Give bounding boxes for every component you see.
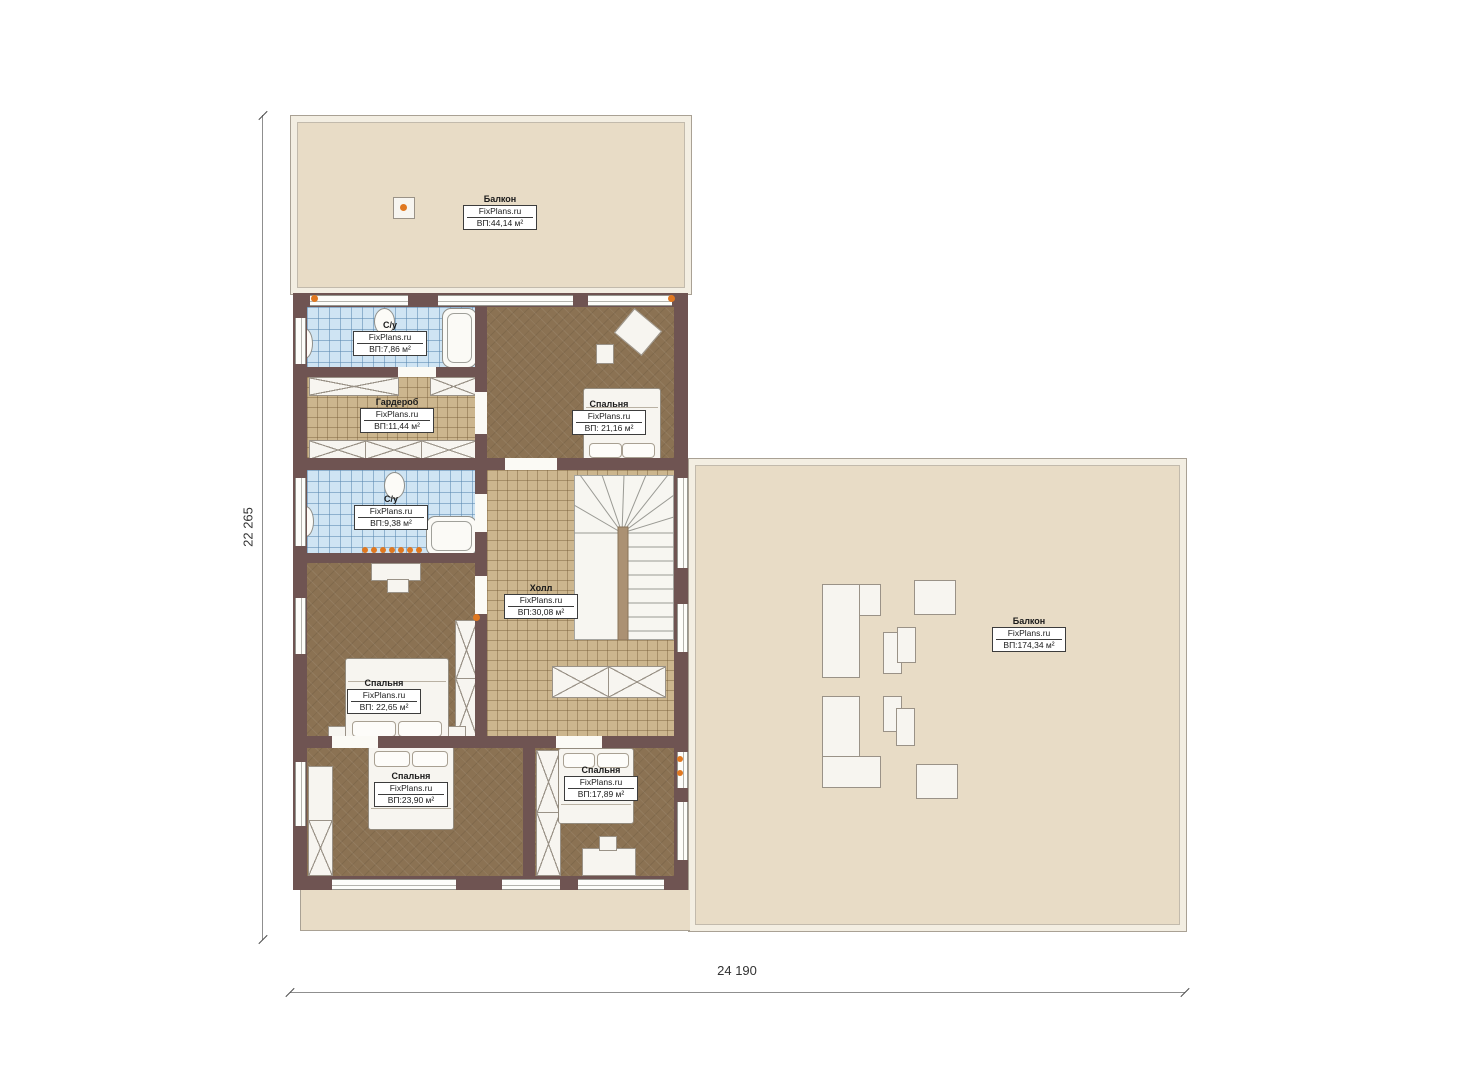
wall-mid-horizontal [293,458,688,470]
door-opening [556,736,602,748]
room-name: Балкон [463,194,537,204]
bathtub-icon [442,308,477,368]
window [438,295,573,306]
door-opening [475,576,487,614]
window [677,478,688,568]
room-area: ВП: 21,16 м² [576,422,642,434]
brand: FixPlans.ru [508,595,574,606]
room-name: Спальня [374,771,448,781]
coffee-table-icon [897,627,916,663]
room-name: Балкон [992,616,1066,626]
room-label-bedroom-top: Спальня FixPlans.ru ВП: 21,16 м² [572,399,646,435]
brand: FixPlans.ru [351,690,417,701]
dimension-line-horizontal [290,992,1185,993]
door-opening [332,736,378,748]
window [677,802,688,860]
room-label-bedroom-bottom-left: Спальня FixPlans.ru ВП:23,90 м² [374,771,448,807]
room-area: ВП:7,86 м² [357,343,423,355]
socket-marker [311,295,318,302]
room-label-su-mid: С/у FixPlans.ru ВП:9,38 м² [354,494,428,530]
towel-rail-dot [416,547,422,553]
window [588,295,672,306]
dimension-tick [258,935,267,944]
closet-icon [552,666,610,698]
room-name: Гардероб [360,397,434,407]
closet-icon [608,666,666,698]
desk-icon [582,848,636,876]
room-name: Холл [504,583,578,593]
brand: FixPlans.ru [576,411,642,422]
bathtub-icon [426,516,477,556]
armchair-icon [914,580,956,615]
armchair-icon [916,764,958,799]
coffee-table-icon [896,708,915,746]
side-table-icon [596,344,614,364]
window [295,478,306,546]
room-name: С/у [354,494,428,504]
chair-icon [387,579,409,593]
room-area: ВП:30,08 м² [508,606,574,618]
room-area: ВП:11,44 м² [364,420,430,432]
staircase-icon [574,475,674,640]
dimension-value-horizontal: 24 190 [717,963,757,978]
monitor-icon [599,836,617,851]
brand: FixPlans.ru [467,206,533,217]
door-opening [475,392,487,434]
dimension-tick [258,111,267,120]
floor-plan-canvas: Балкон FixPlans.ru ВП:44,14 м² С/у FixPl… [0,0,1474,1080]
towel-rail-dot [362,547,368,553]
room-area: ВП:17,89 м² [568,788,634,800]
socket-marker [677,756,683,762]
closet-icon [421,440,477,460]
sofa-icon [822,756,881,788]
brand: FixPlans.ru [357,332,423,343]
wall-right [674,293,688,890]
socket-marker [677,770,683,776]
room-name: С/у [353,320,427,330]
room-label-bedroom-bottom-right: Спальня FixPlans.ru ВП:17,89 м² [564,765,638,801]
room-area: ВП:174,34 м² [996,639,1062,651]
room-area: ВП: 22,65 м² [351,701,417,713]
brand: FixPlans.ru [568,777,634,788]
room-label-balcony-top: Балкон FixPlans.ru ВП:44,14 м² [463,194,537,230]
brand: FixPlans.ru [378,783,444,794]
room-area: ВП:23,90 м² [378,794,444,806]
closet-icon [309,377,399,396]
closet-icon [365,440,423,460]
socket-marker [473,614,480,621]
socket-marker [668,295,675,302]
room-label-su-top: С/у FixPlans.ru ВП:7,86 м² [353,320,427,356]
room-label-hall: Холл FixPlans.ru ВП:30,08 м² [504,583,578,619]
window [295,598,306,654]
towel-rail-dot [398,547,404,553]
towel-rail-dot [389,547,395,553]
wall-su-top-bottom [293,367,475,377]
room-name: Спальня [572,399,646,409]
brand: FixPlans.ru [364,409,430,420]
room-name: Спальня [564,765,638,775]
room-label-wardrobe: Гардероб FixPlans.ru ВП:11,44 м² [360,397,434,433]
closet-icon [308,820,333,876]
door-opening [398,367,436,377]
towel-rail-dot [407,547,413,553]
towel-rail-dot [371,547,377,553]
brand: FixPlans.ru [358,506,424,517]
cabinet-icon [308,766,333,822]
door-opening [505,458,557,470]
sofa-icon [822,584,860,678]
wall-su-mid-bottom [293,553,475,563]
room-label-balcony-right: Балкон FixPlans.ru ВП:174,34 м² [992,616,1066,652]
window [310,295,408,306]
dimension-value-vertical: 22 265 [241,507,256,547]
room-area: ВП:9,38 м² [358,517,424,529]
brand: FixPlans.ru [996,628,1062,639]
window [332,879,456,890]
room-label-bedroom-mid: Спальня FixPlans.ru ВП: 22,65 м² [347,678,421,714]
closet-icon [309,440,367,460]
window [295,762,306,826]
room-name: Спальня [347,678,421,688]
balcony-bottom-strip [300,890,690,931]
balcony-right-floor [688,458,1187,932]
closet-icon [430,377,477,396]
dimension-line-vertical [262,115,263,940]
window [295,318,306,364]
window [677,604,688,652]
window [578,879,664,890]
towel-rail-dot [380,547,386,553]
ceiling-light-icon [393,197,415,219]
wall-between-bottom-bedrooms [523,748,535,876]
door-opening [475,494,487,532]
room-area: ВП:44,14 м² [467,217,533,229]
window [502,879,560,890]
